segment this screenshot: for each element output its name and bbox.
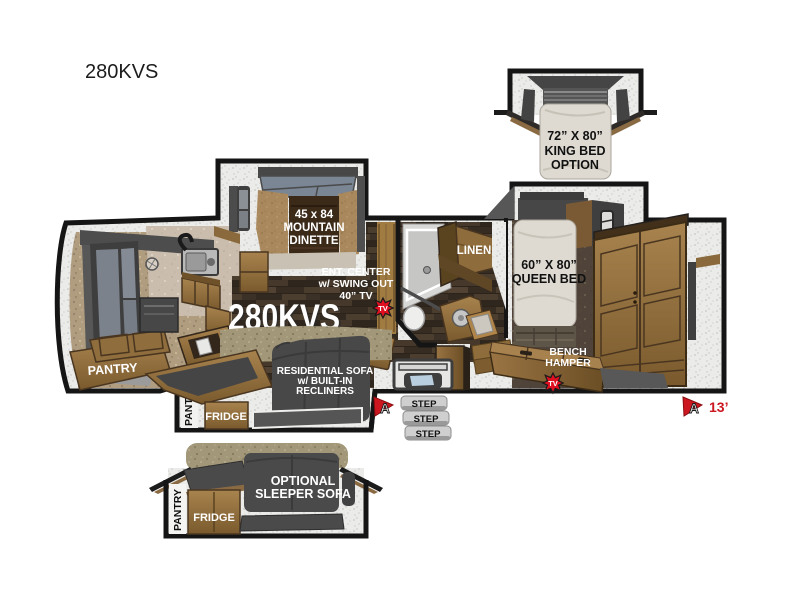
- svg-text:72” X 80”: 72” X 80”: [547, 129, 603, 143]
- svg-text:KING BED: KING BED: [544, 144, 605, 158]
- svg-text:QUEEN BED: QUEEN BED: [512, 272, 586, 286]
- svg-text:PANTRY: PANTRY: [172, 489, 184, 531]
- svg-text:A: A: [380, 401, 390, 416]
- svg-text:TV: TV: [378, 304, 388, 313]
- svg-text:DINETTE: DINETTE: [289, 235, 339, 247]
- svg-text:A: A: [689, 401, 699, 416]
- svg-text:FRIDGE: FRIDGE: [205, 411, 247, 423]
- svg-text:60” X 80”: 60” X 80”: [521, 258, 577, 272]
- svg-text:FRIDGE: FRIDGE: [193, 512, 235, 524]
- svg-text:HAMPER: HAMPER: [545, 357, 591, 369]
- svg-text:OPTION: OPTION: [551, 158, 599, 172]
- svg-text:RECLINERS: RECLINERS: [296, 386, 354, 397]
- svg-text:13’: 13’: [709, 399, 728, 415]
- svg-text:45 x 84: 45 x 84: [295, 209, 334, 221]
- svg-text:TV: TV: [548, 379, 558, 388]
- svg-text:280KVS: 280KVS: [85, 61, 158, 83]
- svg-text:w/ SWING OUT: w/ SWING OUT: [318, 278, 394, 290]
- svg-text:STEP: STEP: [416, 429, 441, 440]
- svg-text:ENT. CENTER: ENT. CENTER: [322, 266, 391, 278]
- svg-text:LINEN: LINEN: [457, 245, 492, 257]
- svg-text:OPTIONAL: OPTIONAL: [271, 474, 336, 488]
- svg-text:MOUNTAIN: MOUNTAIN: [283, 222, 344, 234]
- svg-text:SLEEPER SOFA: SLEEPER SOFA: [255, 487, 351, 501]
- svg-text:STEP: STEP: [412, 399, 437, 410]
- svg-text:STEP: STEP: [414, 414, 439, 425]
- svg-text:40” TV: 40” TV: [339, 290, 372, 302]
